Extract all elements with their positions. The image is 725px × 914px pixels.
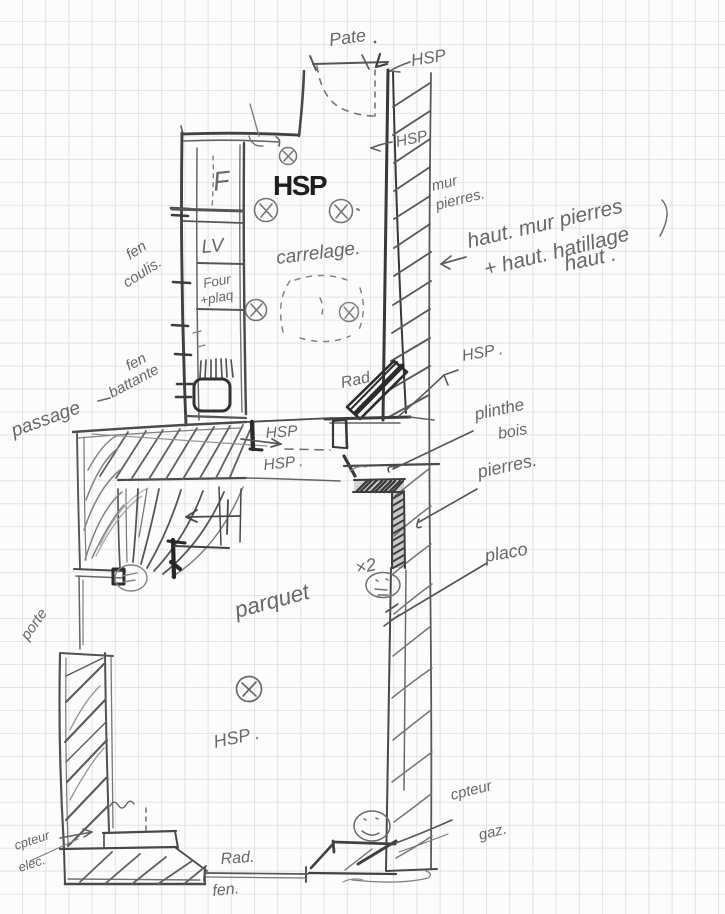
svg-text:HSP: HSP [265, 423, 299, 442]
svg-text:fen.: fen. [212, 880, 240, 900]
svg-text:LV: LV [201, 235, 227, 258]
svg-text:HSP: HSP [273, 170, 327, 201]
svg-text:Rad.: Rad. [220, 849, 255, 868]
svg-text:×2: ×2 [354, 554, 378, 578]
